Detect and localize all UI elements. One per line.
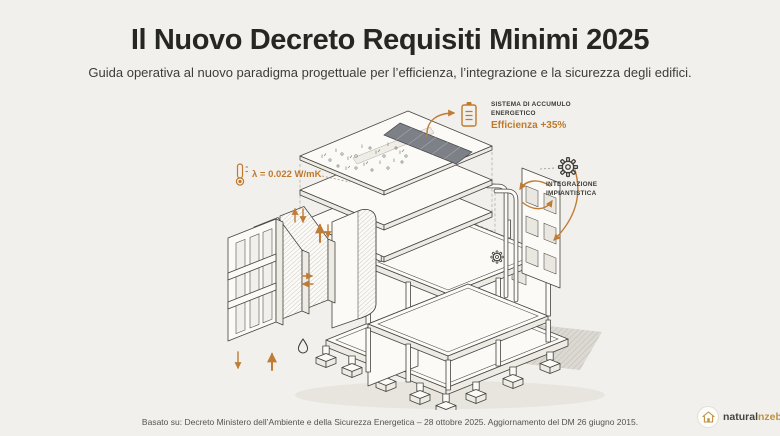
systems-label-line2: IMPIANTISTICA — [546, 190, 597, 199]
annotation-systems-integration: INTEGRAZIONE IMPIANTISTICA — [546, 181, 597, 198]
page-subtitle: Guida operativa al nuovo paradigma proge… — [0, 65, 780, 80]
battery-icon — [462, 102, 476, 126]
brand-name-primary: natural — [723, 411, 758, 423]
slide: Il Nuovo Decreto Requisiti Minimi 2025 G… — [0, 0, 780, 436]
curved-insulation-panel — [332, 209, 376, 328]
house-icon — [697, 406, 719, 428]
source-note: Basato su: Decreto Ministero dell’Ambien… — [0, 417, 780, 427]
brand-logo[interactable]: naturalnzeb.it — [697, 406, 780, 428]
building-exploded-axonometric-illustration — [150, 90, 670, 410]
brand-name: naturalnzeb.it — [723, 411, 780, 423]
storage-value: Efficienza +35% — [491, 120, 571, 131]
storage-label-line2: ENERGETICO — [491, 110, 571, 119]
systems-label-line1: INTEGRAZIONE — [546, 181, 597, 190]
water-drop-icon — [298, 339, 307, 353]
thermometer-icon — [236, 164, 248, 185]
page-title: Il Nuovo Decreto Requisiti Minimi 2025 — [0, 24, 780, 57]
annotation-energy-storage: SISTEMA DI ACCUMULO ENERGETICO Efficienz… — [491, 101, 571, 131]
gear-icon — [559, 158, 578, 177]
brand-name-secondary: nzeb.it — [758, 411, 780, 423]
wall-insulation-panels — [228, 207, 335, 342]
storage-label-line1: SISTEMA DI ACCUMULO — [491, 101, 571, 110]
annotation-insulation-lambda: λ = 0.022 W/mK — [252, 169, 321, 180]
